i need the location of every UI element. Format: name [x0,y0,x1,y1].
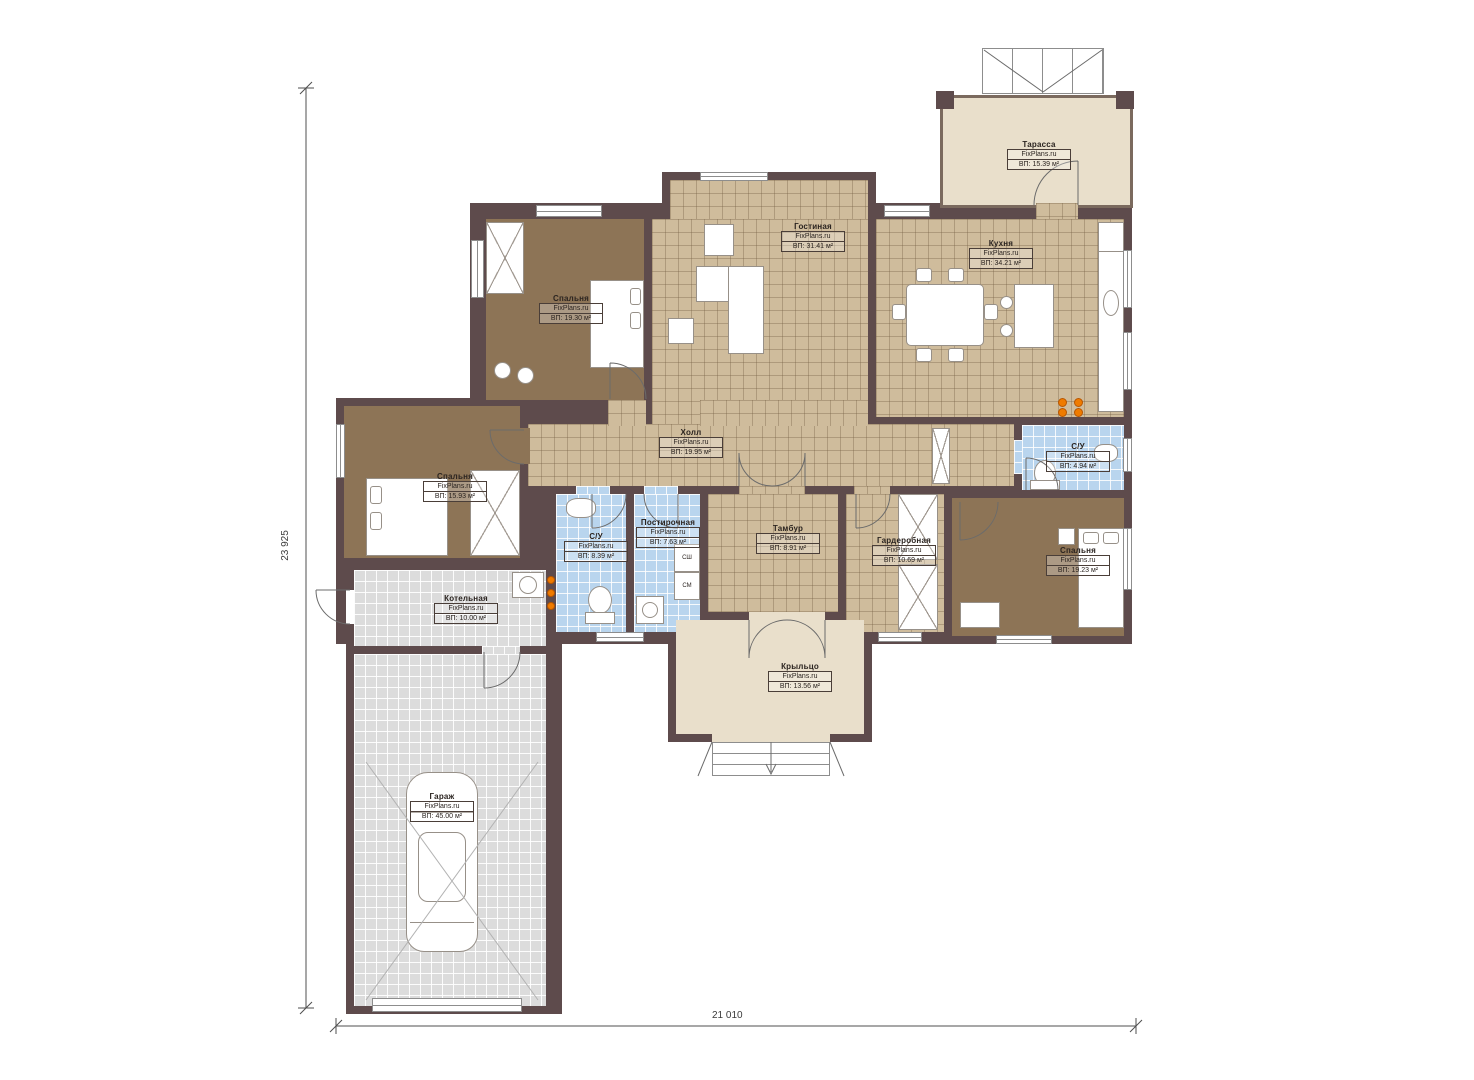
door-bedroom-top [610,363,646,399]
room-name: Кухня [953,239,1049,248]
dimension-label-bottom: 21 010 [712,1010,743,1021]
door-vestibule-right [772,453,805,486]
terrace-stairs-chevron [984,50,1102,92]
door-vestibule-left [739,453,772,486]
room-area: ВП: 8.91 м² [756,543,820,554]
room-label-bathroom-right: С/У FixPlans.ru ВП: 4.94 м² [1030,442,1126,472]
dimension-value: 23 925 [280,530,291,561]
dimension-value: 21 010 [712,1010,743,1021]
room-name: Гостиная [765,222,861,231]
radiator-dot [547,576,555,584]
door-bedroom-right [960,502,998,540]
room-label-hall: Холл FixPlans.ru ВП: 19.95 м² [643,428,739,458]
room-name: Котельная [418,594,514,603]
room-area: ВП: 8.39 м² [564,551,628,562]
room-name: Крыльцо [752,662,848,671]
radiator-dot [547,589,555,597]
room-area: ВП: 10.00 м² [434,613,498,624]
room-label-wardrobe: Гардеробная FixPlans.ru ВП: 10.69 м² [856,536,952,566]
room-label-bedroom-top: Спальня FixPlans.ru ВП: 19.30 м² [523,294,619,324]
porch-stairs-arrow [766,742,776,774]
room-area: ВП: 19.95 м² [659,447,723,458]
room-area: ВП: 31.41 м² [781,241,845,252]
room-area: ВП: 15.93 м² [423,491,487,502]
room-area: ВП: 4.94 м² [1046,461,1110,472]
appliance-label: СШ [682,555,692,561]
dimension-label-left: 23 925 [280,530,291,561]
door-wardrobe [856,494,890,528]
room-area: ВП: 34.21 м² [969,258,1033,269]
radiator-dot [547,602,555,610]
room-name: Постирочная [620,518,716,527]
room-name: Гардеробная [856,536,952,545]
room-area: ВП: 45.00 м² [410,811,474,822]
appliance-box-washer: СМ [674,572,700,600]
room-label-bedroom-left: Спальня FixPlans.ru ВП: 15.93 м² [407,472,503,502]
stove-burner [1058,408,1067,417]
stove-burner [1074,398,1083,407]
appliance-label: СМ [682,583,691,589]
room-name: Тарасса [991,140,1087,149]
room-label-porch: Крыльцо FixPlans.ru ВП: 13.56 м² [752,662,848,692]
room-area: ВП: 10.69 м² [872,555,936,566]
room-label-bedroom-right: Спальня FixPlans.ru ВП: 19.23 м² [1030,546,1126,576]
room-name: Холл [643,428,739,437]
room-area: ВП: 13.56 м² [768,681,832,692]
dimension-line-left [298,82,314,1014]
room-label-boiler: Котельная FixPlans.ru ВП: 10.00 м² [418,594,514,624]
floor-plan: СШ СМ [0,0,1474,1080]
appliance-box-dryer: СШ [674,544,700,572]
doors-and-details-overlay [0,0,1474,1080]
door-porch-right [787,620,825,658]
room-name: Спальня [523,294,619,303]
room-name: Спальня [1030,546,1126,555]
door-boiler-entry [316,590,350,624]
room-area: ВП: 15.39 м² [1007,159,1071,170]
stove-burner [1074,408,1083,417]
door-bedroom-left [490,430,524,464]
room-name: Тамбур [740,524,836,533]
room-label-living: Гостиная FixPlans.ru ВП: 31.41 м² [765,222,861,252]
room-label-garage: Гараж FixPlans.ru ВП: 45.00 м² [394,792,490,822]
room-label-laundry: Постирочная FixPlans.ru ВП: 7.63 м² [620,518,716,548]
room-label-kitchen: Кухня FixPlans.ru ВП: 34.21 м² [953,239,1049,269]
room-label-terrace: Тарасса FixPlans.ru ВП: 15.39 м² [991,140,1087,170]
room-area: ВП: 19.23 м² [1046,565,1110,576]
room-name: С/У [1030,442,1126,451]
room-name: Гараж [394,792,490,801]
room-label-vestibule: Тамбур FixPlans.ru ВП: 8.91 м² [740,524,836,554]
room-area: ВП: 7.63 м² [636,537,700,548]
door-porch-left [749,620,787,658]
room-area: ВП: 19.30 м² [539,313,603,324]
door-boiler-garage [484,652,520,688]
room-name: Спальня [407,472,503,481]
stove-burner [1058,398,1067,407]
